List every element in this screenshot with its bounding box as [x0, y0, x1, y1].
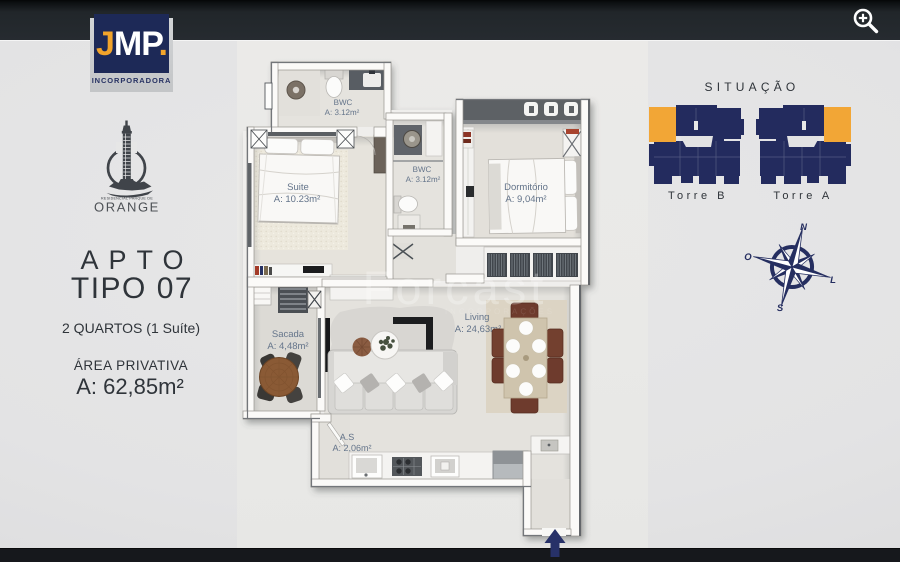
svg-text:A: 2,06m²: A: 2,06m² — [332, 443, 371, 453]
svg-text:A: 3.12m²: A: 3.12m² — [406, 175, 441, 184]
svg-text:A.S: A.S — [340, 432, 355, 442]
svg-text:Dormitório: Dormitório — [504, 182, 548, 193]
svg-text:A: 9,04m²: A: 9,04m² — [505, 194, 546, 205]
svg-text:Sacada: Sacada — [272, 329, 305, 340]
svg-text:A: 10.23m²: A: 10.23m² — [274, 194, 320, 205]
svg-text:A: 4,48m²: A: 4,48m² — [267, 341, 308, 352]
svg-text:INCORPORAÇÕES: INCORPORAÇÕES — [445, 306, 555, 316]
svg-text:A: 3.12m²: A: 3.12m² — [325, 108, 360, 117]
svg-text:BWC: BWC — [413, 165, 432, 174]
svg-text:Suite: Suite — [287, 182, 309, 193]
svg-text:BWC: BWC — [334, 98, 353, 107]
